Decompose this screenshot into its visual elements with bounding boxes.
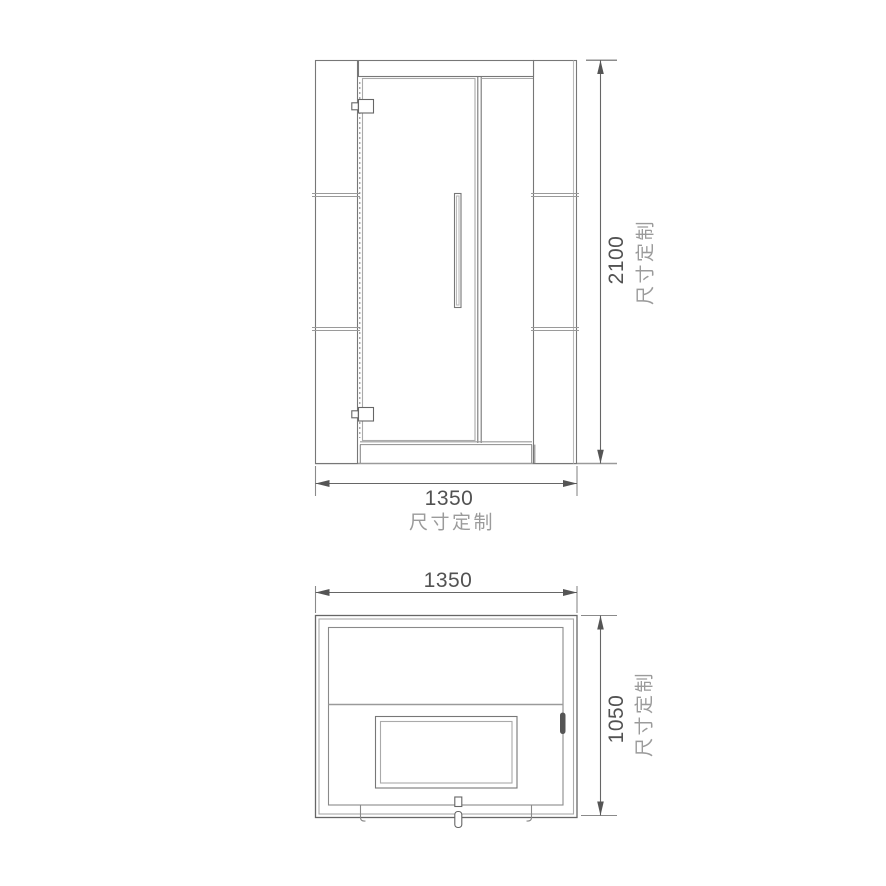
front-left-column xyxy=(316,61,358,464)
plan-view xyxy=(316,616,578,828)
plan-center-unit xyxy=(376,717,518,789)
dim-arrow-down xyxy=(597,450,604,464)
front-right-column xyxy=(534,61,577,464)
plan-width-dimension xyxy=(316,586,578,613)
dim-arrow-left xyxy=(316,480,330,487)
front-bottom-rail xyxy=(360,442,532,445)
front-view xyxy=(312,61,617,464)
plan-door-handle xyxy=(455,797,462,828)
door-handle xyxy=(455,194,462,308)
front-threshold xyxy=(360,445,535,463)
front-top-beam xyxy=(359,61,534,77)
technical-drawing-page: 2100 尺寸定制 1350 尺寸定制 1350 1050 尺寸定制 xyxy=(0,0,886,886)
dim-arrow-up xyxy=(597,60,604,74)
drawing-linework xyxy=(0,0,886,886)
plan-hinge-block xyxy=(560,713,566,735)
plan-foot-left xyxy=(361,805,366,821)
dim-arrow-left xyxy=(316,589,330,596)
dim-arrow-down xyxy=(597,802,604,816)
dim-arrow-right xyxy=(563,589,577,596)
front-door-edge-profile xyxy=(478,77,481,444)
dim-arrow-right xyxy=(563,480,577,487)
dim-arrow-up xyxy=(597,616,604,630)
plan-depth-dimension xyxy=(581,616,617,816)
front-height-dimension xyxy=(586,60,617,463)
front-width-dimension xyxy=(316,466,578,496)
plan-foot-right xyxy=(527,805,532,821)
